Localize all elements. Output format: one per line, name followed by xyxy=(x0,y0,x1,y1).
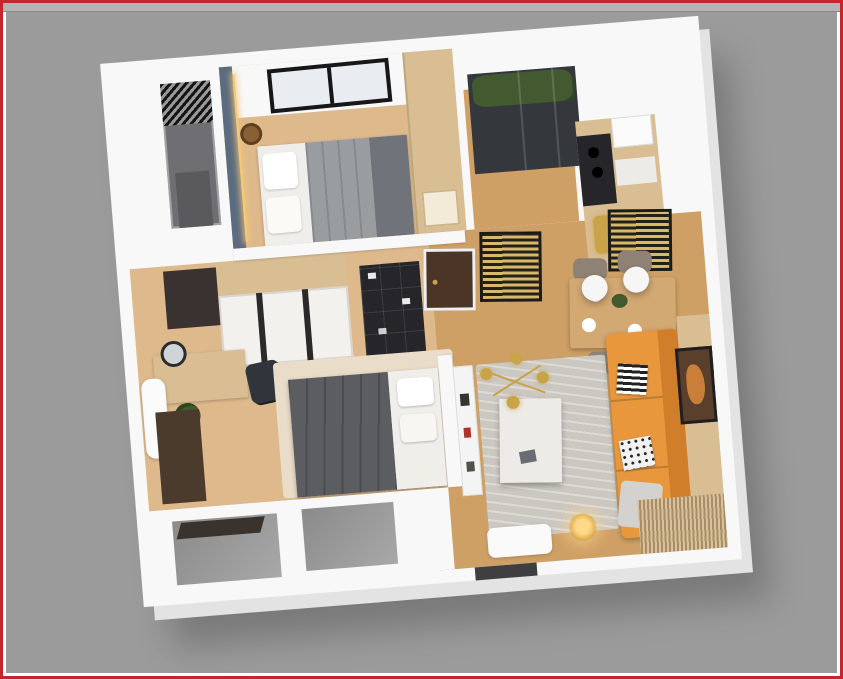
table-centerpiece-plant xyxy=(612,294,628,308)
balcony xyxy=(467,66,583,174)
window-recess-2 xyxy=(301,502,398,571)
artwork xyxy=(675,346,718,425)
entry-slat-screen xyxy=(479,231,542,302)
vanity-desk xyxy=(153,349,249,404)
wardrobe-door-slot xyxy=(302,289,314,361)
brass-chandelier xyxy=(477,349,558,419)
kitchen-tall-cabinet xyxy=(611,114,654,148)
loggia-floor-shadow xyxy=(175,171,213,229)
open-shelf-unit xyxy=(359,261,426,358)
shelf-decor-item xyxy=(402,298,410,305)
bedroom-1 xyxy=(219,49,465,249)
chandelier-globe xyxy=(506,395,520,409)
console-decor-red xyxy=(463,427,471,438)
chandelier-arm xyxy=(493,365,541,397)
bed-2-pillow xyxy=(399,412,437,443)
slatted-deck xyxy=(637,493,728,554)
artwork-figure xyxy=(685,364,706,405)
bed-1-pillow xyxy=(265,195,302,234)
dark-floor-mat xyxy=(155,409,206,504)
window-mullion xyxy=(327,67,334,103)
loggia xyxy=(160,80,221,229)
bed-1-foot-runner xyxy=(369,135,415,238)
kitchen-white-counter xyxy=(615,156,657,186)
cooktop-burner xyxy=(592,166,604,178)
sofa-pillow-striped xyxy=(616,363,648,395)
apartment-floorplan xyxy=(100,16,742,607)
chandelier-globe xyxy=(480,368,493,381)
bed-1-blanket xyxy=(305,138,377,243)
bed-2-linen xyxy=(388,368,447,490)
bed-1 xyxy=(257,135,415,247)
white-doormat xyxy=(487,523,553,558)
coffee-table-decor xyxy=(519,449,537,464)
rattan-pendant-lamp xyxy=(239,122,263,146)
wardrobe-1-shelf xyxy=(421,189,460,228)
loggia-ventilation-grate xyxy=(160,80,213,126)
table-plate xyxy=(582,318,596,332)
entry-door xyxy=(423,248,476,311)
chandelier-globe xyxy=(511,353,523,365)
kitchen-dark-counter xyxy=(576,133,617,206)
shelf-decor-item xyxy=(368,273,376,280)
balcony-plants xyxy=(471,68,573,108)
screenshot-canvas xyxy=(0,0,843,679)
bed-1-pillow xyxy=(262,152,299,191)
bed-2-duvet xyxy=(288,372,397,498)
chandelier-globe xyxy=(536,371,549,384)
background-top-band xyxy=(3,3,840,12)
console-decor-dark xyxy=(466,461,475,472)
bedroom-2-window-panel xyxy=(163,267,220,329)
shelf-decor-item xyxy=(378,328,386,335)
bed-2-pillow xyxy=(396,376,434,407)
bed-2 xyxy=(288,368,447,498)
bed-2-pillow xyxy=(402,448,440,479)
cooktop-burner xyxy=(588,147,600,159)
wardrobe-door-slot xyxy=(256,293,268,365)
window-recess-1 xyxy=(172,513,282,585)
sofa-pillow-dotted xyxy=(619,435,656,470)
air-conditioner-panel xyxy=(177,516,265,539)
sofa-seat-divider xyxy=(611,396,663,402)
door-handle xyxy=(433,280,438,285)
console-decor-dark xyxy=(460,393,470,406)
